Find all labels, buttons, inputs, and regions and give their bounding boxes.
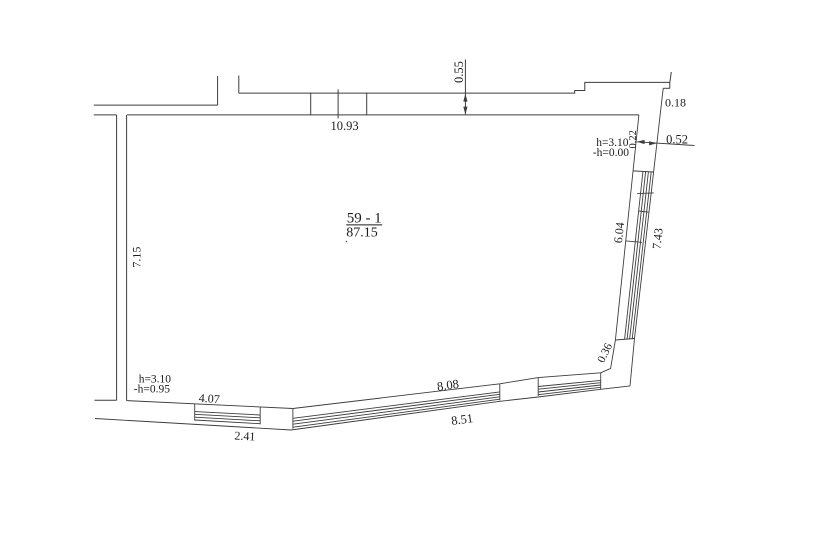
svg-text:7.15: 7.15 xyxy=(129,247,143,268)
svg-text:0.18: 0.18 xyxy=(665,96,686,110)
svg-text:8.08: 8.08 xyxy=(436,377,460,394)
svg-text:10.93: 10.93 xyxy=(330,119,358,133)
svg-text:0.52: 0.52 xyxy=(666,132,688,146)
svg-text:4.07: 4.07 xyxy=(198,391,220,406)
svg-text:0.22: 0.22 xyxy=(628,130,639,148)
svg-text:0.36: 0.36 xyxy=(595,341,615,365)
svg-text:2.41: 2.41 xyxy=(234,428,256,443)
svg-text:-h=0.95: -h=0.95 xyxy=(134,383,170,395)
svg-text:0.55: 0.55 xyxy=(452,61,466,83)
svg-text:8.51: 8.51 xyxy=(450,411,474,428)
svg-text:6.04: 6.04 xyxy=(611,222,627,244)
svg-text:-h=0.00: -h=0.00 xyxy=(593,147,629,159)
svg-text:87.15: 87.15 xyxy=(346,226,378,241)
svg-text:59 - 1: 59 - 1 xyxy=(347,211,382,227)
svg-text:7.43: 7.43 xyxy=(649,227,665,249)
